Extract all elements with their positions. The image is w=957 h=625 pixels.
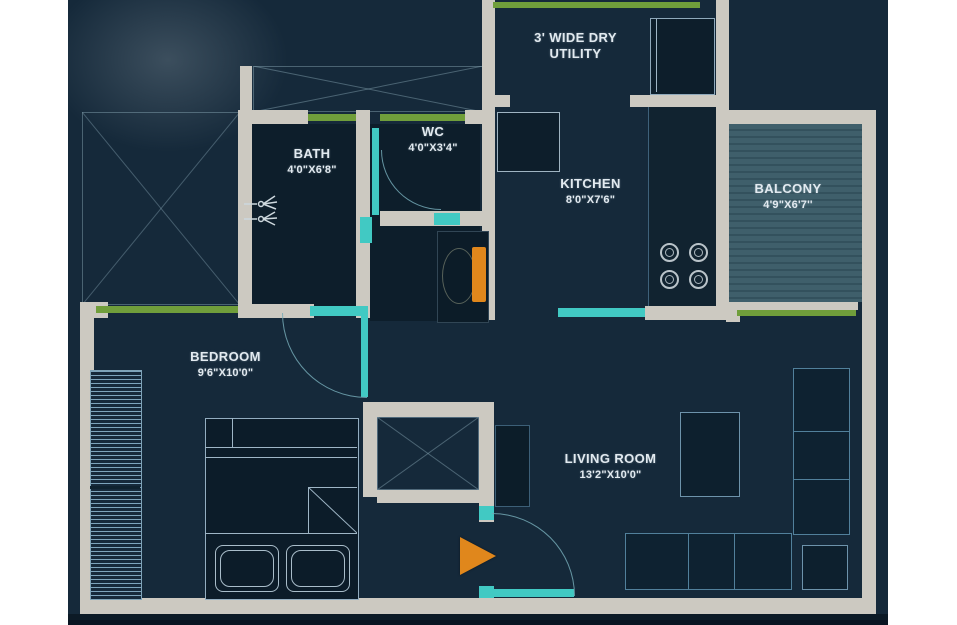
bottom-shadow-dark (68, 620, 888, 625)
dry-utility-label: 3' WIDE DRY UTILITY (493, 30, 658, 63)
wall-right (862, 110, 876, 614)
pillow (286, 545, 350, 592)
wall-shaft-top (363, 402, 494, 417)
room-name: LIVING ROOM (533, 451, 688, 467)
wall-shaft-left (363, 402, 377, 497)
wall-kitchen-balcony (716, 0, 729, 320)
room-name: BALCONY (723, 181, 853, 197)
duct-center-shaft (377, 417, 479, 490)
window-dry-utility (493, 2, 700, 8)
divider-vent (360, 217, 372, 243)
orange-door-panel (472, 247, 486, 302)
wc-label: WC 4'0"X3'4" (378, 124, 488, 156)
bath-label: BATH 4'0"X6'8" (260, 146, 364, 178)
bed-corner-line (232, 418, 233, 447)
wardrobe-divider (90, 486, 140, 489)
kitchen-label: KITCHEN 8'0"X7'6" (523, 176, 658, 208)
bed-headboard-line (205, 457, 357, 458)
bedroom-label: BEDROOM 9'6"X10'0" (163, 349, 288, 381)
wash-basin (442, 248, 476, 304)
stove-burner-icon (660, 243, 679, 262)
living-room-label: LIVING ROOM 13'2"X10'0" (533, 451, 688, 483)
blanket-fold-diagonal (308, 487, 357, 533)
floor-plan: 3' WIDE DRY UTILITY BATH 4'0"X6'8" WC 4'… (68, 0, 888, 625)
sofa-seat-divider (734, 534, 735, 589)
room-name: BATH (260, 146, 364, 162)
kitchen-living-opening (558, 308, 645, 317)
wall-utility-bottom-right (630, 95, 729, 107)
balcony-label: BALCONY 4'9"X6'7'' (723, 181, 853, 213)
stove-burner-icon (689, 270, 708, 289)
sofa-seat-divider (794, 431, 849, 432)
balcony-floor (729, 124, 862, 302)
room-dims: 9'6"X10'0" (163, 367, 288, 381)
sofa-seat-divider (688, 534, 689, 589)
shower-icon (244, 192, 286, 230)
dry-utility-line1: 3' WIDE DRY (493, 30, 658, 46)
sofa-bottom (625, 533, 792, 590)
entrance-door-arc (492, 513, 575, 596)
wall-bath-top (252, 110, 308, 124)
wall-duct-stub (240, 66, 252, 112)
bed-headboard-line (205, 447, 357, 448)
dry-utility-line2: UTILITY (493, 46, 658, 62)
wall-kitchen-living (645, 306, 732, 320)
washing-machine (650, 18, 715, 95)
stove-burner-icon (689, 243, 708, 262)
window-bedroom (96, 306, 238, 313)
room-dims: 8'0"X7'6" (523, 194, 658, 208)
floor-plan-page: 3' WIDE DRY UTILITY BATH 4'0"X6'8" WC 4'… (0, 0, 957, 625)
room-name: BEDROOM (163, 349, 288, 365)
wardrobe (90, 370, 142, 600)
wall-bottom (80, 598, 876, 614)
window-bath (308, 114, 356, 121)
window-balcony (737, 310, 856, 316)
wall-balcony-top (716, 110, 876, 124)
side-table (802, 545, 848, 590)
window-wc (380, 114, 465, 121)
duct-above-bath (253, 66, 483, 112)
sofa-seat-divider (794, 479, 849, 480)
wall-utility-bottom-left (482, 95, 510, 107)
sofa-right (793, 368, 850, 535)
tv-unit (495, 425, 530, 507)
bed-blanket-edge (205, 533, 357, 534)
room-dims: 4'0"X6'8" (260, 164, 364, 178)
wall-wc-top (465, 110, 495, 124)
room-name: WC (378, 124, 488, 140)
open-duct-left (82, 112, 240, 305)
wc-threshold (434, 213, 460, 225)
room-dims: 4'9"X6'7'' (723, 199, 853, 213)
stove-burner-icon (660, 270, 679, 289)
room-dims: 4'0"X3'4" (378, 142, 488, 156)
wall-shaft-bottom (377, 490, 479, 503)
pillow (215, 545, 279, 592)
wall-balcony-sill (733, 302, 858, 310)
room-name: KITCHEN (523, 176, 658, 192)
coffee-table (680, 412, 740, 497)
kitchen-sink (497, 112, 560, 172)
wall-bath-wc-divider (356, 110, 370, 318)
room-dims: 13'2"X10'0" (533, 469, 688, 483)
entrance-arrow-icon (460, 537, 496, 575)
bedroom-door-arc (282, 313, 367, 398)
